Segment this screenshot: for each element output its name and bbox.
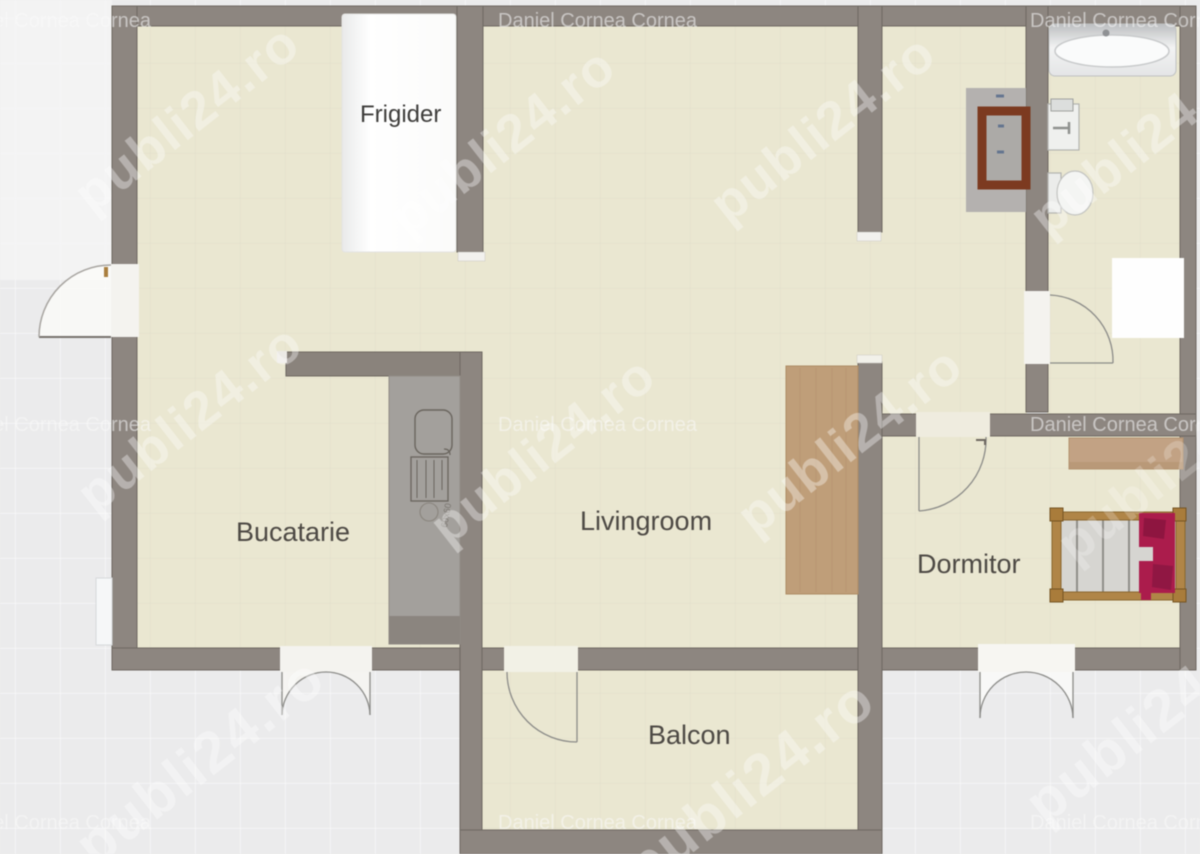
svg-text:Livingroom: Livingroom	[580, 506, 712, 536]
svg-text:Daniel Cornea Cornea: Daniel Cornea Cornea	[498, 10, 698, 32]
svg-text:Daniel Cornea Cornea: Daniel Cornea Cornea	[1030, 10, 1200, 32]
svg-text:Frigider: Frigider	[360, 101, 441, 128]
svg-text:Dormitor: Dormitor	[917, 549, 1021, 579]
svg-text:Balcon: Balcon	[648, 720, 731, 750]
svg-text:Bucatarie: Bucatarie	[236, 517, 350, 547]
svg-text:Daniel Cornea Cornea: Daniel Cornea Cornea	[0, 10, 152, 32]
